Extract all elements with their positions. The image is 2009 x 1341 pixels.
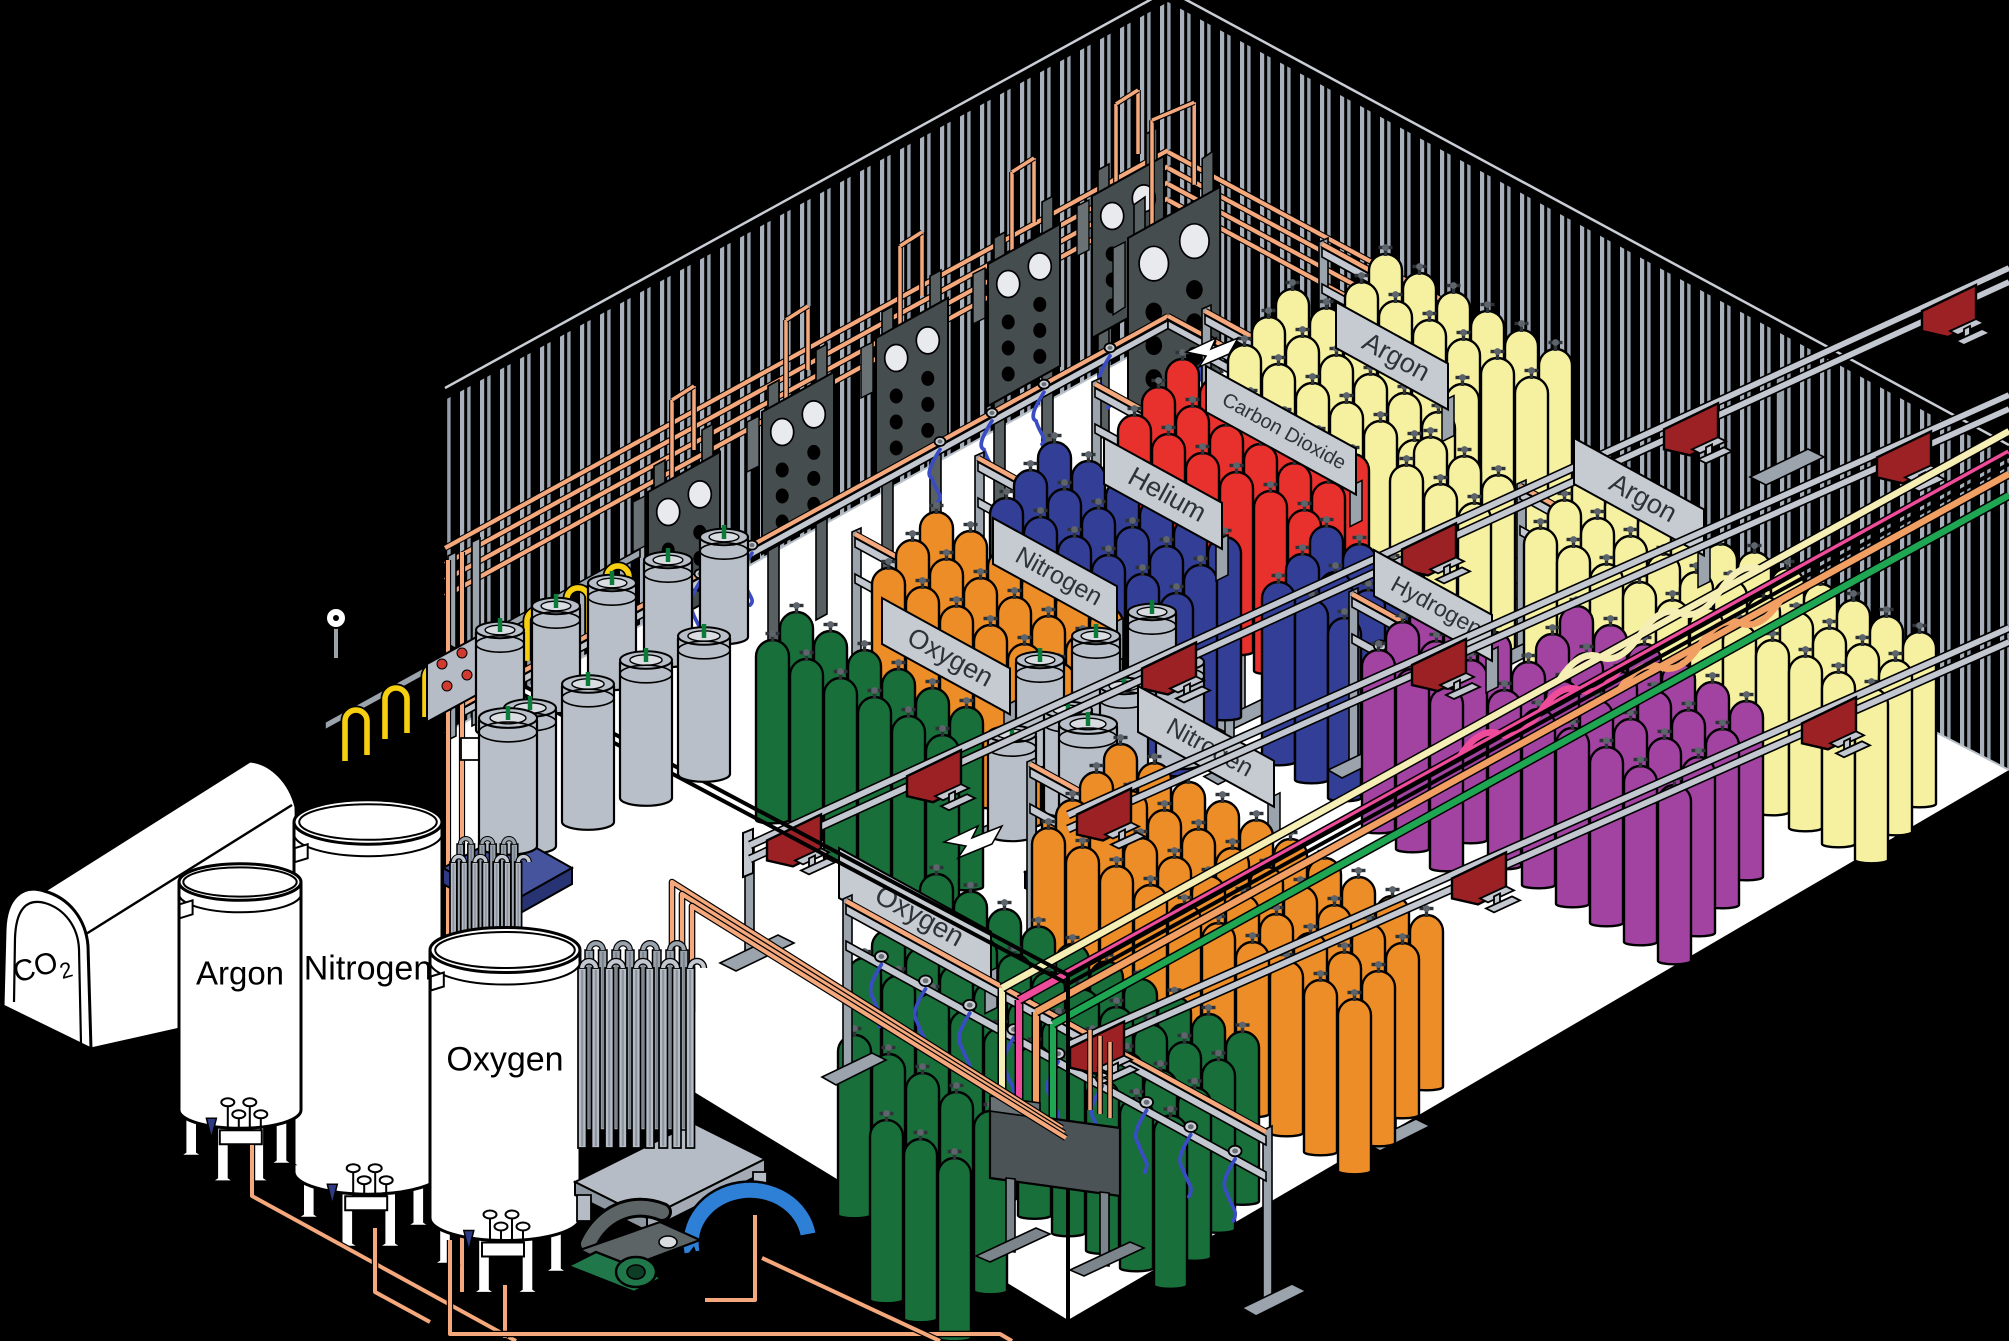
- svg-text:Oxygen: Oxygen: [446, 1041, 563, 1079]
- svg-text:Argon: Argon: [196, 955, 284, 992]
- svg-text:Nitrogen: Nitrogen: [304, 950, 433, 988]
